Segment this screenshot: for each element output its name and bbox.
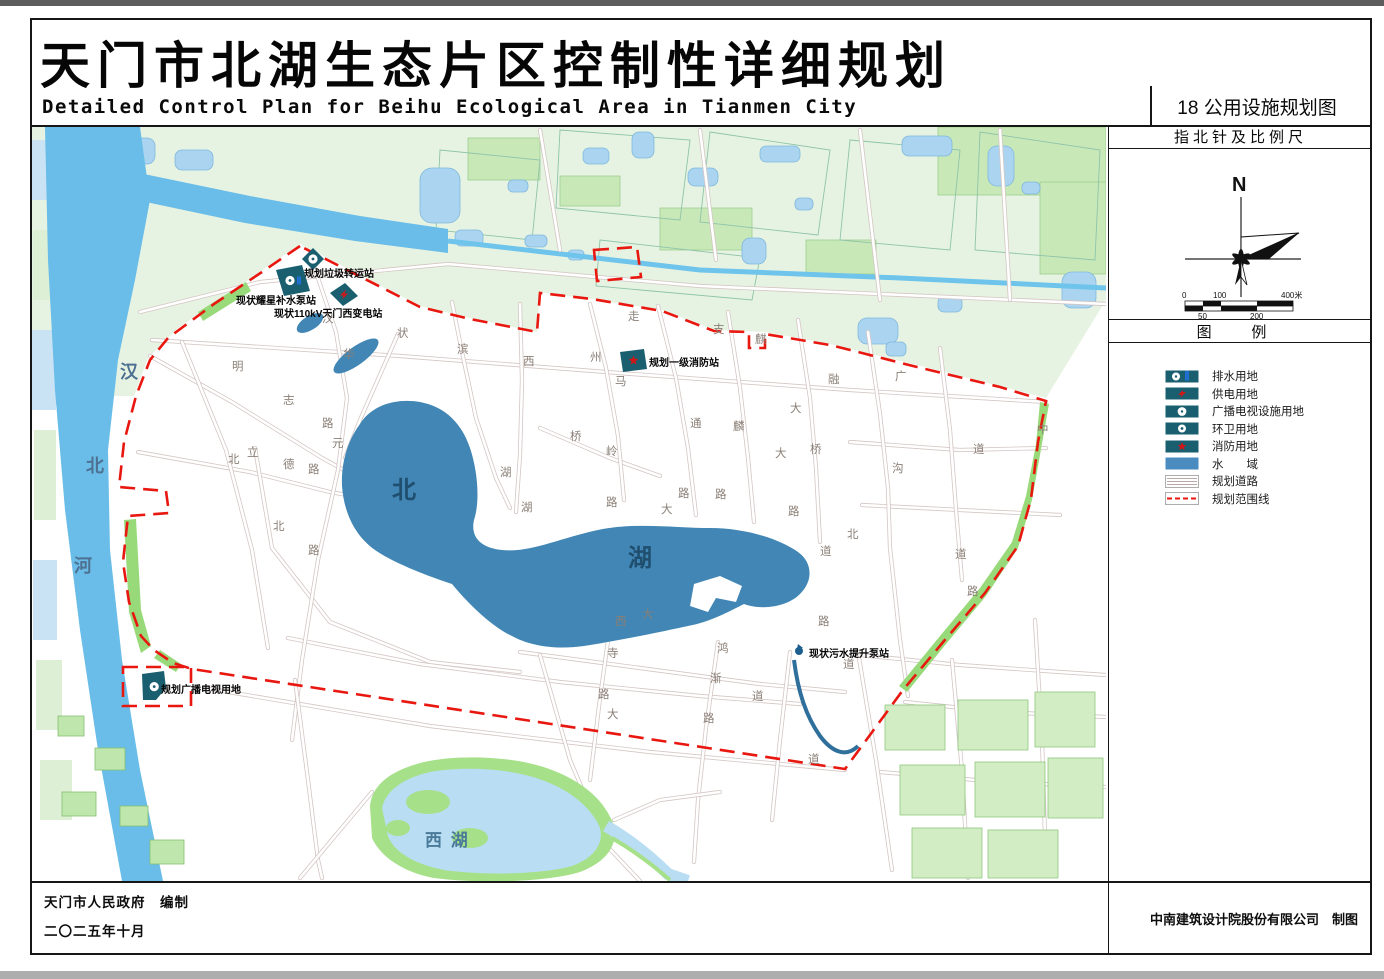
road-name-char: 中 [1037,423,1049,436]
legend-item-water: 水 域 [1165,457,1258,471]
road-name-char: 麒 [755,332,767,346]
road-name-char: 路 [788,504,800,518]
road-name-char: 广 [895,370,907,383]
scan-edge-bottom [0,971,1384,979]
road-name-char: 道 [752,689,764,703]
facility-label: 现状耀星补水泵站 [236,294,316,307]
road-name-char: 汉 [322,312,334,325]
svg-text:0: 0 [1182,291,1187,300]
road-name-char: 道 [808,752,820,766]
road-name-char: 华 [343,347,355,361]
scale-bar: 0 100 400米 50 200 [1182,290,1302,319]
road-name-char: 元 [332,438,344,450]
road-name-char: 大 [790,401,802,415]
road-name-char: 大 [661,502,673,516]
scan-edge-top [0,0,1384,6]
water-label: 北 [392,477,418,504]
road-name-char: 走 [628,310,640,323]
water-label: 湖 [628,545,654,572]
road-name-char: 路 [818,614,830,628]
map-legend-panel: 指北针及比例尺 N [1108,125,1372,881]
road-name-char: 滨 [457,342,469,356]
legend-header: 图 例 [1109,319,1372,343]
legend-item-broadcast: 广播电视设施用地 [1165,404,1304,418]
water-label: 汉 [120,362,140,382]
road-name-char: 渐 [710,671,722,685]
road-name-char: 大 [607,707,619,721]
legend-label: 水 域 [1212,456,1258,472]
road-name-char: 西 [523,356,535,368]
facility-label: 规划广播电视用地 [161,683,241,696]
road-name-char: 通 [690,417,702,430]
road-name-char: 马 [615,375,627,388]
legend-item-drain: 排水用地 [1165,369,1258,383]
road-name-char: 志 [283,394,295,407]
xihu-lake [370,757,688,881]
road-name-char: 大 [775,446,787,460]
legend-swatch-drain [1165,370,1199,383]
road-name-char: 道 [843,657,855,671]
water-label: 北 [86,456,106,476]
legend-label: 规划范围线 [1212,491,1270,507]
facility-label: 规划垃圾转运站 [304,267,374,280]
road-name-char: 路 [322,416,334,430]
water-label: 河 [74,556,94,576]
bottom-right-fields [885,692,1103,878]
road-name-char: 路 [606,495,618,509]
road-name-char: 道 [955,547,967,561]
road-name-char: 沟 [892,462,904,475]
road-name-char: 路 [967,584,979,598]
footer-design-institute: 中南建筑设计院股份有限公司 制图 [1108,881,1372,955]
legend-label: 消防用地 [1212,438,1258,454]
legend-swatch-fire [1165,440,1199,453]
legend-swatch-broadcast [1165,405,1199,418]
plan-title-english: Detailed Control Plan for Beihu Ecologic… [42,96,857,118]
issuer-line: 天门市人民政府 编制 [44,891,1108,911]
legend-swatch-road [1165,475,1199,488]
legend-label: 规划道路 [1212,473,1258,489]
road-name-char: 德 [283,457,295,471]
road-name-char: 北 [228,453,240,466]
road-name-char: 大 [642,607,654,621]
road-name-char: 融 [828,373,840,386]
road-name-char: 路 [598,687,610,701]
road-name-char: 路 [715,487,727,501]
road-name-char: 明 [232,360,244,373]
legend-swatch-boundary [1165,492,1199,505]
svg-text:200: 200 [1250,312,1264,319]
legend-swatch-power [1165,387,1199,400]
road-name-char: 桥 [810,443,822,456]
road-name-char: 道 [973,442,985,456]
legend-swatch-water [1165,457,1199,470]
road-name-char: 湖 [500,465,512,479]
svg-text:400米: 400米 [1281,290,1302,300]
legend-label: 广播电视设施用地 [1212,403,1304,419]
road-name-char: 西 [615,616,627,628]
road-name-char: 州 [590,351,602,364]
road-name-char: 路 [308,462,320,476]
road-name-char: 路 [703,711,715,725]
north-letter: N [1232,174,1246,196]
footer-issuer: 天门市人民政府 编制 二〇二五年十月 [30,881,1108,955]
road-name-char: 麟 [733,419,745,433]
date-line: 二〇二五年十月 [44,920,1108,940]
legend-label: 排水用地 [1212,368,1258,384]
road-name-char: 寺 [607,647,619,660]
legend-swatch-sanitation [1165,422,1199,435]
plan-title-chinese: 天门市北湖生态片区控制性详细规划 [40,26,1040,92]
legend-item-fire: 消防用地 [1165,439,1258,453]
road-name-char: 路 [308,543,320,557]
road-name-char: 岭 [606,444,618,458]
plan-map-canvas: 规划垃圾转运站现状耀星补水泵站现状110kV天门西变电站规划一级消防站现状污水提… [32,127,1106,881]
legend-item-power: 供电用地 [1165,387,1258,401]
legend-item-sanitation: 环卫用地 [1165,422,1258,436]
road-name-char: 桥 [570,430,582,443]
title-divider-line [1150,86,1152,125]
road-name-char: 路 [678,486,690,500]
road-name-char: 鸿 [717,641,729,655]
legend-list: 排水用地供电用地广播电视设施用地环卫用地消防用地水 域规划道路规划范围线 [1109,343,1372,877]
road-name-char: 道 [820,544,832,558]
road-name-char: 北 [847,528,859,541]
compass-and-scale: N 0 100 [1109,149,1372,319]
road-name-char: 湖 [521,500,533,514]
road-name-char: 支 [713,323,725,336]
svg-text:50: 50 [1198,312,1207,319]
road-name-char: 立 [247,445,259,459]
legend-item-road: 规划道路 [1165,474,1258,488]
svg-text:100: 100 [1213,291,1227,300]
legend-label: 环卫用地 [1212,421,1258,437]
sheet-number-label: 18 公用设施规划图 [1150,90,1364,123]
road-name-char: 状 [397,326,409,340]
north-scale-header: 指北针及比例尺 [1109,125,1372,149]
facility-label: 规划一级消防站 [649,356,719,369]
legend-item-boundary: 规划范围线 [1165,492,1270,506]
water-label: 西 湖 [425,831,470,850]
legend-label: 供电用地 [1212,386,1258,402]
road-name-char: 北 [273,520,285,533]
